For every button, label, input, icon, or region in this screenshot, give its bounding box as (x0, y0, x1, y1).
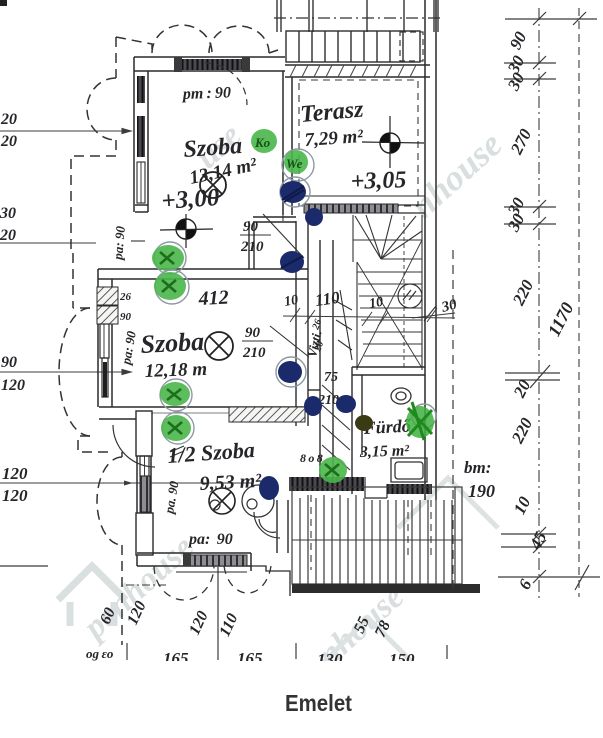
svg-text:110: 110 (314, 288, 341, 310)
svg-text:7,29 m²: 7,29 m² (304, 126, 365, 151)
svg-text:90: 90 (243, 219, 259, 235)
svg-text:30: 30 (0, 205, 16, 222)
svg-text:10: 10 (368, 295, 384, 312)
svg-text:20: 20 (0, 227, 16, 244)
svg-text:120: 120 (1, 377, 25, 394)
svg-text:Ko: Ko (254, 135, 271, 150)
svg-text:120: 120 (2, 464, 28, 483)
svg-text:120: 120 (2, 486, 28, 505)
svg-text:90: 90 (120, 311, 132, 323)
svg-text:pm : 90: pm : 90 (181, 84, 232, 103)
svg-text:26: 26 (119, 291, 132, 303)
svg-text:pa: 90: pa: 90 (110, 225, 128, 261)
svg-text:3,15 m²: 3,15 m² (359, 442, 411, 461)
svg-text:9,53 m²: 9,53 m² (199, 470, 263, 495)
svg-text:20: 20 (0, 111, 17, 128)
svg-text:20: 20 (0, 133, 17, 150)
svg-text:Terasz: Terasz (299, 97, 365, 128)
svg-text:bm:: bm: (464, 458, 491, 477)
svg-text:210: 210 (242, 345, 266, 361)
svg-text:75: 75 (324, 370, 338, 385)
svg-text:8 o 8: 8 o 8 (300, 451, 323, 465)
svg-text:190: 190 (468, 481, 495, 501)
svg-text:210: 210 (240, 239, 264, 255)
svg-text:Emelet: Emelet (285, 690, 352, 716)
svg-text:Szoba: Szoba (140, 327, 205, 359)
svg-text:90: 90 (1, 354, 17, 371)
svg-text:og ɛo: og ɛo (86, 646, 114, 661)
svg-text:412: 412 (197, 286, 229, 310)
svg-text:+3,00: +3,00 (161, 184, 221, 215)
svg-text:10: 10 (283, 293, 299, 310)
svg-text:pa: 90: pa: 90 (187, 531, 233, 548)
svg-text:+3,05: +3,05 (350, 167, 407, 195)
svg-text:We: We (286, 156, 303, 171)
svg-text:90: 90 (245, 325, 261, 341)
